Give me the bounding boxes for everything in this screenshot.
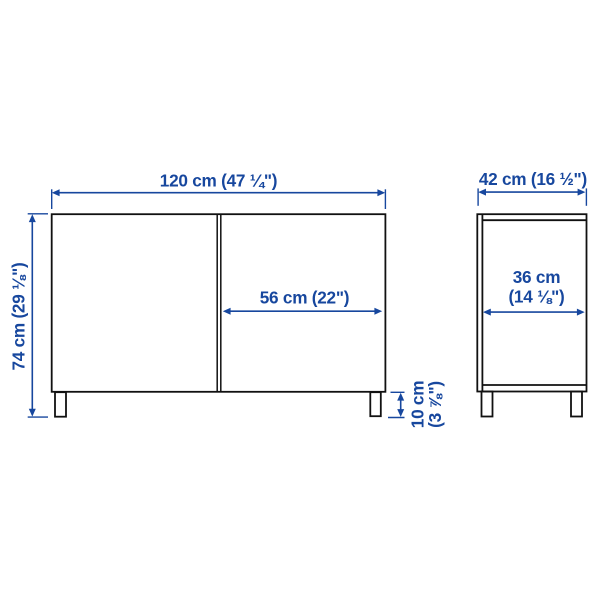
svg-text:74 cm (29 ⅛"): 74 cm (29 ⅛") <box>9 262 29 370</box>
svg-text:56 cm (22"): 56 cm (22") <box>260 287 349 307</box>
svg-text:36 cm: 36 cm <box>513 267 560 287</box>
svg-text:(14 ⅛"): (14 ⅛") <box>508 287 564 307</box>
svg-text:42 cm (16 ½"): 42 cm (16 ½") <box>479 169 587 189</box>
svg-text:120 cm (47 ¼"): 120 cm (47 ¼") <box>160 171 277 191</box>
svg-text:(3 ⅞"): (3 ⅞") <box>425 381 445 428</box>
